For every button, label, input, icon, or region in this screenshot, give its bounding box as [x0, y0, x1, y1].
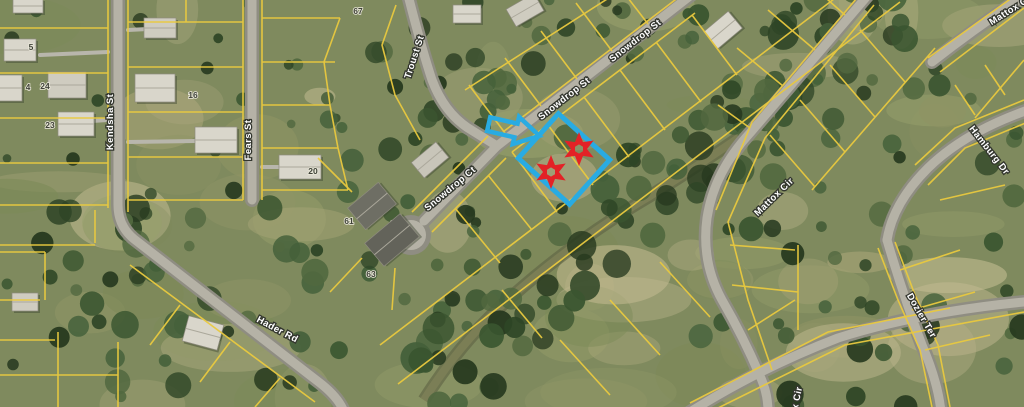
parcel-number: 4: [26, 82, 31, 92]
tree: [722, 80, 741, 99]
parcel-number: 63: [366, 269, 376, 279]
tree: [781, 242, 804, 265]
tree: [596, 23, 611, 38]
tree: [431, 259, 444, 272]
tree: [865, 300, 880, 315]
tree: [854, 296, 866, 308]
tree: [504, 317, 525, 338]
house: [195, 127, 239, 155]
tree: [7, 359, 19, 371]
tree: [479, 323, 504, 348]
tree: [445, 53, 462, 70]
tree: [883, 135, 902, 154]
tree: [68, 316, 89, 337]
tree: [301, 259, 328, 286]
tree: [893, 151, 905, 163]
tree: [773, 318, 784, 329]
parcel-number: 16: [188, 90, 198, 100]
house: [58, 112, 96, 138]
house: [12, 293, 40, 313]
tree: [537, 295, 552, 310]
tree: [642, 151, 666, 175]
tree: [771, 14, 792, 35]
tree: [49, 327, 70, 348]
tree: [819, 300, 832, 313]
parcel-number: 61: [344, 216, 354, 226]
tree: [337, 181, 359, 203]
tree: [685, 31, 699, 45]
tree: [159, 354, 172, 367]
tree: [102, 271, 118, 287]
tree: [837, 53, 858, 74]
house: [13, 0, 45, 15]
tree: [480, 373, 507, 400]
tree: [996, 358, 1013, 375]
tree: [563, 290, 585, 312]
tree: [867, 5, 883, 21]
tree: [814, 181, 826, 193]
tree: [816, 221, 827, 232]
tree: [287, 120, 296, 129]
tree: [3, 154, 12, 163]
tree: [378, 137, 402, 161]
tree: [453, 359, 478, 384]
tree: [185, 208, 206, 229]
tree: [418, 108, 438, 128]
tree: [506, 84, 516, 94]
tree: [225, 182, 242, 199]
aerial-parcel-map: Kendsha StFears StTroust StSnowdrop StSn…: [0, 0, 1024, 407]
tree: [184, 241, 195, 252]
tree: [311, 244, 323, 256]
tree: [603, 250, 631, 278]
house: [0, 75, 24, 103]
tree: [689, 324, 713, 348]
tree: [928, 74, 950, 96]
tree: [1009, 126, 1023, 140]
street-label: Fears St: [243, 119, 254, 160]
tree: [521, 51, 546, 76]
tree: [601, 199, 618, 216]
tree: [532, 26, 551, 45]
tree: [875, 344, 892, 361]
house: [135, 74, 177, 104]
terrain-patch: [919, 95, 966, 128]
tree: [892, 14, 910, 32]
tree: [257, 195, 282, 220]
tree: [984, 233, 1003, 252]
tree: [398, 293, 410, 305]
house: [453, 5, 483, 25]
tree: [640, 223, 665, 248]
tree: [464, 259, 481, 276]
tree: [685, 131, 714, 160]
street-label: Kendsha St: [105, 93, 116, 150]
tree: [495, 95, 510, 110]
tree: [764, 220, 781, 237]
tree: [520, 249, 531, 260]
parcel-number: 20: [308, 166, 318, 176]
tree: [111, 311, 139, 339]
tree: [828, 251, 842, 265]
tree: [31, 232, 53, 254]
tree: [275, 242, 285, 252]
tree: [859, 259, 871, 271]
tree: [790, 2, 803, 15]
tree: [905, 225, 920, 240]
tree: [512, 336, 533, 357]
parcel-number: 5: [29, 42, 34, 52]
parcel-number: 24: [40, 81, 50, 91]
tree: [821, 129, 840, 148]
tree: [336, 122, 347, 133]
tree: [626, 176, 652, 202]
tree: [537, 274, 559, 296]
tree: [866, 74, 878, 86]
tree: [498, 254, 523, 279]
tree: [612, 5, 622, 15]
tree: [80, 291, 104, 315]
tree: [656, 185, 677, 206]
tree: [330, 341, 348, 359]
tree: [321, 92, 334, 105]
tree: [672, 126, 689, 143]
tree: [92, 94, 105, 107]
tree: [739, 217, 764, 242]
tree: [165, 372, 191, 398]
tree: [701, 103, 728, 130]
tree: [400, 194, 415, 209]
map-viewport: Kendsha StFears StTroust StSnowdrop StSn…: [0, 0, 1024, 407]
tree: [115, 391, 126, 402]
house: [48, 72, 88, 100]
tree: [106, 348, 125, 367]
tree: [63, 250, 84, 271]
tree: [201, 62, 214, 75]
tree: [320, 111, 338, 129]
tree: [760, 26, 771, 37]
tree: [822, 108, 844, 130]
tree: [59, 200, 82, 223]
tree: [779, 59, 792, 72]
parcel-number: 23: [45, 120, 55, 130]
tree: [462, 321, 473, 332]
tree: [70, 284, 82, 296]
tree: [145, 188, 157, 200]
tree: [846, 387, 866, 407]
tree: [2, 279, 13, 290]
tree: [1000, 284, 1013, 297]
tree: [92, 314, 107, 329]
tree: [778, 327, 795, 344]
parcel-number: 67: [353, 6, 363, 16]
tree: [213, 33, 223, 43]
tree: [423, 313, 455, 345]
tree: [341, 149, 364, 172]
tree: [466, 48, 485, 67]
